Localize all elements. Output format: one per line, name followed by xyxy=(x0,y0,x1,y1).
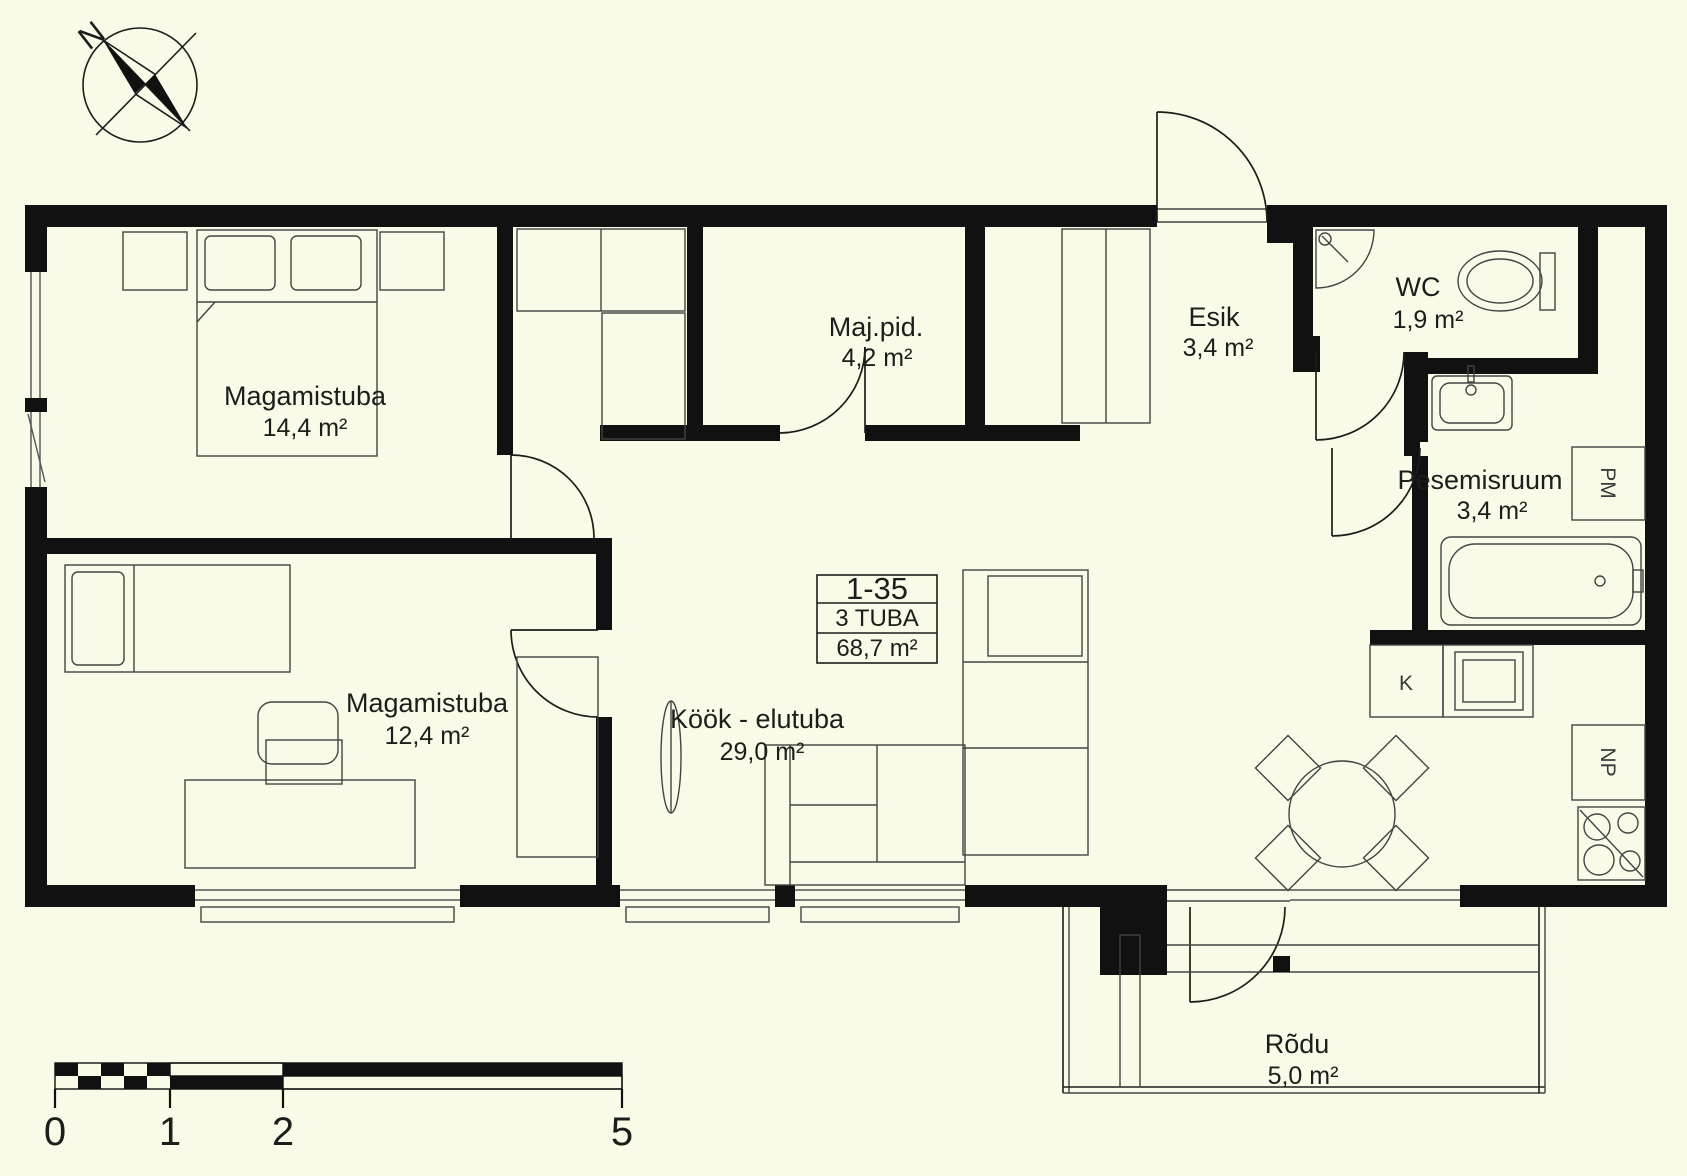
wall-bedrooms-divider xyxy=(47,538,612,554)
room-labels: Magamistuba 14,4 m² Magamistuba 12,4 m² … xyxy=(224,272,1563,1090)
single-bed xyxy=(65,565,290,672)
wc-area: 1,9 m² xyxy=(1393,306,1464,334)
scale-label-0: 0 xyxy=(44,1110,66,1154)
wall-segment xyxy=(25,205,1157,227)
wall-segment xyxy=(1267,205,1667,227)
burner xyxy=(1620,851,1640,871)
pillow xyxy=(72,572,124,665)
dining-table xyxy=(1289,761,1395,867)
corner-sink-faucet xyxy=(1322,236,1348,262)
desk xyxy=(185,780,415,868)
wall-wardrobe-utility xyxy=(687,227,703,441)
wall-hall-south xyxy=(985,425,1080,441)
door-swing xyxy=(1316,352,1404,440)
bedroom2-area: 12,4 m² xyxy=(385,722,470,750)
stove xyxy=(1578,807,1645,880)
wall-segment xyxy=(460,885,620,907)
wall-segment xyxy=(1460,885,1667,907)
desk-chair xyxy=(258,702,338,764)
window-sill xyxy=(626,907,769,922)
bedroom1-name: Magamistuba xyxy=(224,381,387,411)
hallway-name: Esik xyxy=(1188,302,1240,332)
unit-room-count: 3 TUBA xyxy=(835,605,919,632)
sink-cabinet xyxy=(1443,645,1533,717)
dining-chair xyxy=(1255,825,1320,890)
scale-label-1: 1 xyxy=(159,1110,181,1154)
washbasin-drain xyxy=(1466,385,1476,395)
dining-chair xyxy=(1255,735,1320,800)
bedroom1-area: 14,4 m² xyxy=(263,414,348,442)
dining-chair xyxy=(1363,735,1428,800)
window-balcony xyxy=(1290,890,1460,900)
washing-machine: PM xyxy=(1572,447,1645,520)
nightstand xyxy=(380,232,444,290)
burner xyxy=(1584,814,1610,840)
wall-utility-hall xyxy=(965,227,985,441)
wall-washroom-north xyxy=(1404,358,1598,374)
wardrobe-hallway xyxy=(1062,229,1150,423)
door-swing xyxy=(511,455,594,538)
windows xyxy=(25,272,1460,922)
washing-machine-label: PM xyxy=(1596,467,1619,499)
kitchen-living-area: 29,0 m² xyxy=(720,738,805,766)
pillow xyxy=(291,236,361,290)
washbasin xyxy=(1432,366,1512,430)
wall-segment xyxy=(775,885,795,907)
wall-segment xyxy=(25,227,47,272)
window-kitchen-right xyxy=(795,890,965,922)
bedroom1-door xyxy=(511,455,594,538)
compass-rose: N xyxy=(71,14,197,142)
balcony-door xyxy=(1167,885,1290,1002)
wardrobe-bedroom2 xyxy=(517,657,598,857)
washroom-area: 3,4 m² xyxy=(1457,497,1528,525)
entry-door xyxy=(1157,112,1267,227)
balcony-name: Rõdu xyxy=(1265,1029,1330,1059)
shelf-unit xyxy=(963,570,1088,855)
wall-segment xyxy=(25,885,195,907)
wall-entry-jamb xyxy=(1267,227,1293,243)
wc-name: WC xyxy=(1396,272,1441,302)
wall-segment xyxy=(1645,227,1667,885)
door-swing xyxy=(511,630,598,717)
bedroom2-door xyxy=(511,630,598,717)
wall-segment xyxy=(965,885,1100,907)
balcony-threshold-post xyxy=(1273,956,1290,972)
bathtub xyxy=(1441,537,1643,625)
scale-label-2: 2 xyxy=(272,1110,294,1154)
door-opening xyxy=(1167,885,1290,907)
wall-bedroom2-east xyxy=(596,554,612,630)
sink-basin xyxy=(1463,660,1515,702)
burner xyxy=(1618,813,1638,833)
wall-segment xyxy=(25,487,47,885)
wall-bedroom1-east xyxy=(497,227,513,455)
window-sill xyxy=(201,907,454,922)
unit-number: 1-35 xyxy=(846,571,908,606)
wall-wc-east xyxy=(1578,227,1598,374)
wardrobe-top-corridor xyxy=(517,229,685,311)
wall-washroom-door-jamb xyxy=(1404,440,1420,456)
compass-north-label: N xyxy=(71,14,111,57)
window-mullion xyxy=(25,398,47,412)
utility-area: 4,2 m² xyxy=(842,344,913,372)
sofa xyxy=(765,745,965,885)
kitchen-sink-label: K xyxy=(1399,672,1413,695)
floor-plan: N xyxy=(0,0,1687,1176)
balcony-area: 5,0 m² xyxy=(1268,1062,1339,1090)
kitchen-living-name: Köök - elutuba xyxy=(670,704,845,734)
nightstand xyxy=(123,232,187,290)
scale-bar: 0 1 2 5 xyxy=(44,1063,633,1154)
fridge-label: NP xyxy=(1596,747,1619,776)
unit-info-box: 1-35 3 TUBA 68,7 m² xyxy=(817,571,937,663)
sink-outer xyxy=(1455,652,1523,710)
wc-door xyxy=(1316,352,1404,440)
washroom-fixtures: PM xyxy=(1432,366,1645,625)
window-sill xyxy=(801,907,959,922)
scale-label-5: 5 xyxy=(611,1110,633,1154)
pillow xyxy=(205,236,275,290)
kitchen-counter: K NP xyxy=(1370,645,1645,880)
unit-total-area: 68,7 m² xyxy=(836,635,917,662)
hallway-area: 3,4 m² xyxy=(1183,334,1254,362)
balcony-side-wall xyxy=(1100,885,1167,975)
washroom-name: Pesemisruum xyxy=(1397,465,1562,495)
utility-name: Maj.pid. xyxy=(829,312,924,342)
bathtub-drain xyxy=(1595,576,1605,586)
compass-needle-south-half xyxy=(145,74,187,128)
dining-chair xyxy=(1363,825,1428,890)
wardrobe-corridor-tall xyxy=(602,313,685,439)
window-bedroom1 xyxy=(25,272,47,487)
window-kitchen-left xyxy=(620,890,775,922)
window-bedroom2 xyxy=(195,890,460,922)
door-swing xyxy=(1190,907,1285,1002)
dining-set xyxy=(1255,735,1428,890)
compass-needle-north-half xyxy=(103,40,145,94)
toilet xyxy=(1458,251,1555,311)
blanket-fold xyxy=(197,302,215,322)
bedroom2-name: Magamistuba xyxy=(346,688,509,718)
window-opening xyxy=(25,272,47,487)
wall-washroom-south xyxy=(1370,630,1645,645)
burner xyxy=(1584,845,1614,875)
